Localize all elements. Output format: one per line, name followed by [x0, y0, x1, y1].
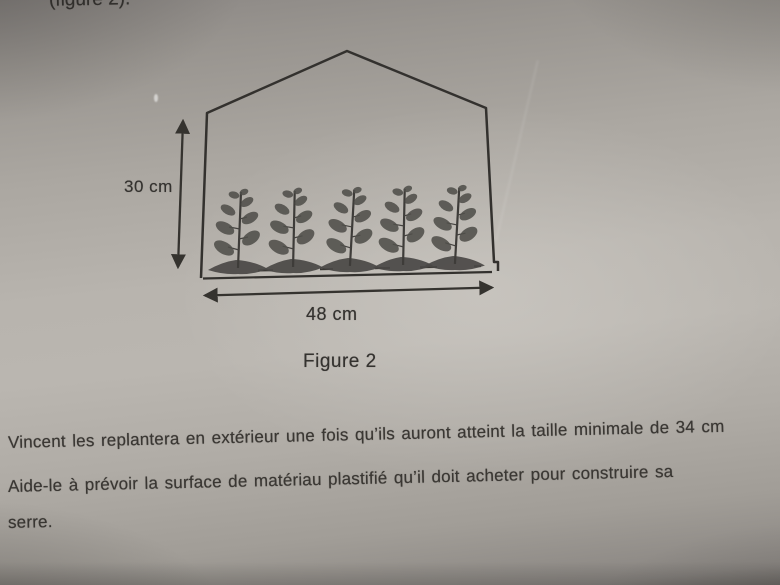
top-caption: (figure 2). [49, 0, 131, 12]
width-arrow [205, 288, 492, 296]
width-dimension-label: 48 cm [306, 304, 358, 325]
plant-icon [425, 183, 487, 271]
plant-icon [262, 186, 324, 274]
paragraph-line-3: serre. [8, 512, 53, 533]
height-dimension-label: 30 cm [124, 177, 173, 197]
height-arrow [178, 121, 183, 267]
figure-caption: Figure 2 [303, 351, 377, 373]
plant-icon [208, 188, 268, 275]
plant-icon [372, 184, 434, 272]
plant-icon [320, 185, 382, 273]
document-photo: (figure 2). 30 cm 48 cm Figure 2 Vincent… [0, 0, 780, 585]
paper-speck [154, 94, 158, 102]
figure-2-drawing [0, 0, 780, 585]
